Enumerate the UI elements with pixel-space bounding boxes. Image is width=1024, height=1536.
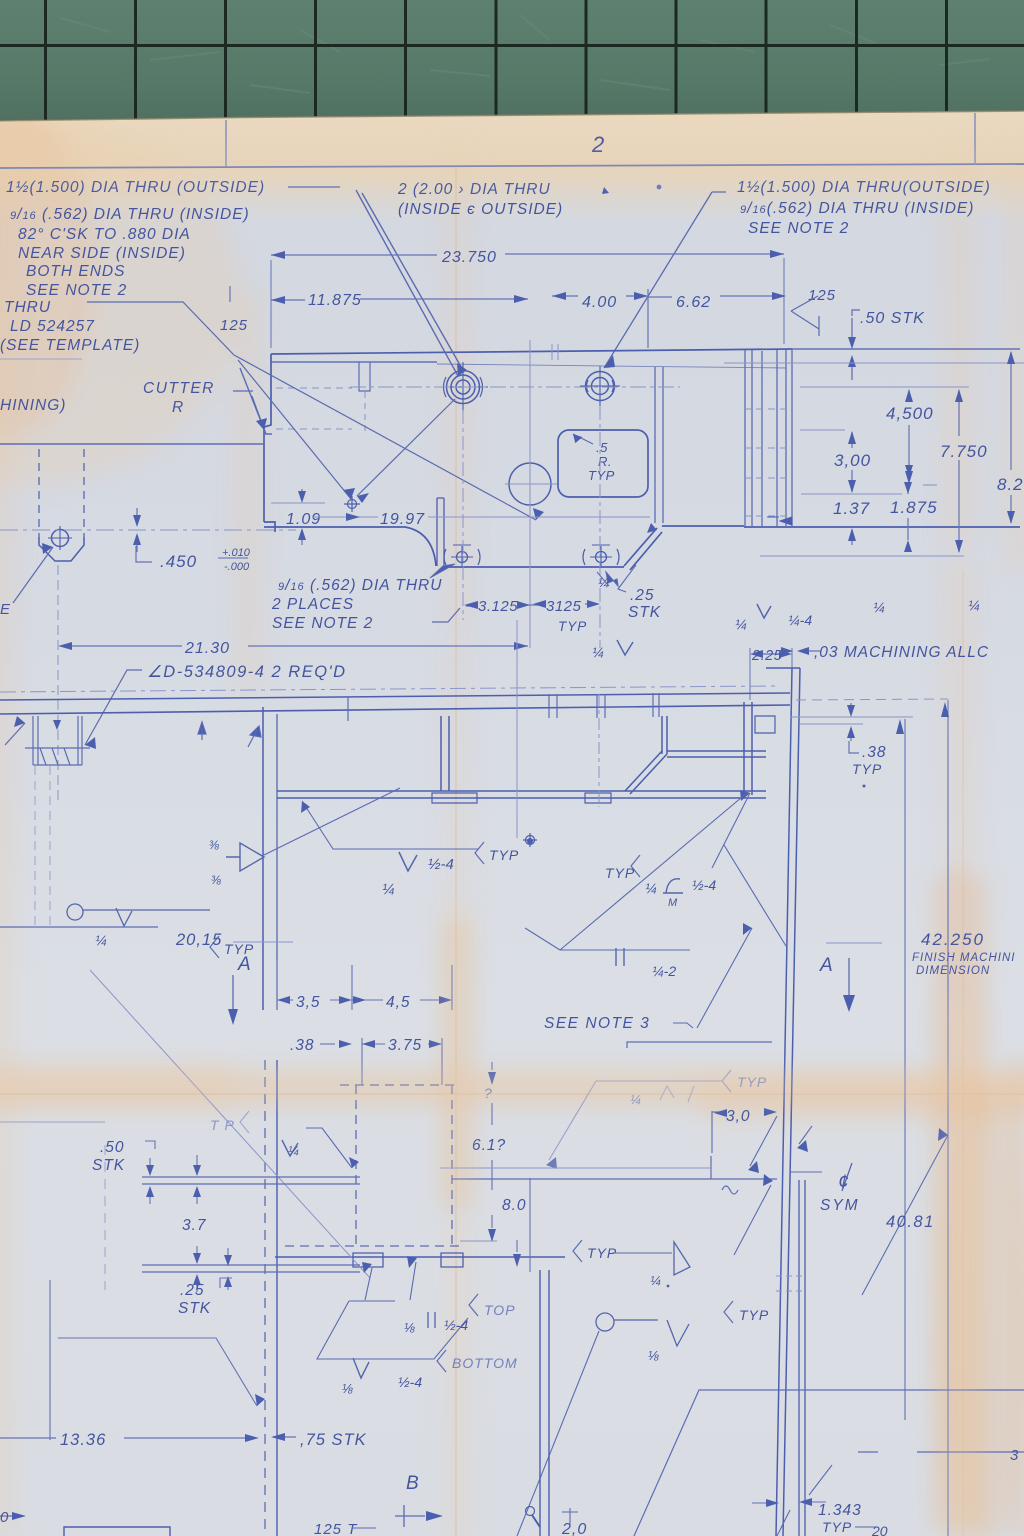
svg-text:DIMENSION: DIMENSION bbox=[916, 965, 990, 977]
svg-text:+.010: +.010 bbox=[222, 547, 251, 559]
svg-text:11.875: 11.875 bbox=[308, 292, 362, 309]
svg-text:.50 STK: .50 STK bbox=[860, 310, 925, 327]
svg-text:.25: .25 bbox=[180, 1282, 205, 1299]
svg-text:125: 125 bbox=[220, 317, 248, 334]
svg-text:1½(1.500) DIA THRU (OUTSIDE): 1½(1.500) DIA THRU (OUTSIDE) bbox=[6, 179, 265, 196]
svg-text:40.81: 40.81 bbox=[886, 1213, 935, 1231]
svg-text:HINING): HINING) bbox=[0, 397, 66, 414]
svg-text:STK: STK bbox=[92, 1157, 125, 1174]
svg-text:½-4: ½-4 bbox=[692, 877, 716, 893]
svg-text:T P: T P bbox=[210, 1117, 235, 1133]
svg-text:NEAR SIDE (INSIDE): NEAR SIDE (INSIDE) bbox=[18, 245, 186, 262]
svg-text:2 PLACES: 2 PLACES bbox=[271, 596, 354, 613]
svg-text:¼: ¼ bbox=[592, 644, 604, 660]
svg-text:SYM: SYM bbox=[820, 1197, 860, 1214]
svg-text:TYP: TYP bbox=[558, 619, 587, 634]
svg-text:⅜: ⅜ bbox=[211, 873, 221, 887]
svg-text:,03 MACHINING ALLС: ,03 MACHINING ALLС bbox=[814, 644, 989, 661]
svg-text:-.000: -.000 bbox=[224, 561, 250, 573]
svg-text:SEE NOTE 2: SEE NOTE 2 bbox=[272, 615, 373, 632]
svg-text:6.62: 6.62 bbox=[676, 294, 711, 311]
svg-text:⅜: ⅜ bbox=[209, 838, 219, 852]
svg-text:3,0: 3,0 bbox=[726, 1108, 751, 1125]
svg-text:0: 0 bbox=[0, 1509, 9, 1526]
svg-text:¼: ¼ bbox=[735, 616, 747, 632]
svg-text:THRU: THRU bbox=[4, 299, 51, 316]
svg-text:23.750: 23.750 bbox=[441, 249, 497, 266]
svg-text:¼-4: ¼-4 bbox=[788, 612, 812, 628]
svg-text:19.97: 19.97 bbox=[380, 511, 425, 528]
svg-text:¼: ¼ bbox=[968, 597, 980, 613]
svg-text:20: 20 bbox=[871, 1523, 888, 1536]
svg-text:3.125: 3.125 bbox=[478, 598, 518, 615]
svg-text:4.00: 4.00 bbox=[582, 294, 617, 311]
svg-text:∠D-534809-4 2 REQ'D: ∠D-534809-4 2 REQ'D bbox=[147, 663, 347, 681]
svg-text:1.875: 1.875 bbox=[890, 498, 938, 517]
svg-text:20,15: 20,15 bbox=[175, 931, 222, 949]
svg-text:.5: .5 bbox=[596, 440, 608, 455]
svg-text:3.75: 3.75 bbox=[388, 1037, 422, 1054]
svg-text:,75 STK: ,75 STK bbox=[300, 1431, 367, 1449]
svg-text:8.0: 8.0 bbox=[502, 1197, 527, 1214]
svg-text:A: A bbox=[819, 955, 834, 976]
svg-text:6.1?: 6.1? bbox=[472, 1137, 506, 1154]
svg-text:.38: .38 bbox=[862, 744, 887, 761]
svg-text:¼: ¼ bbox=[95, 932, 107, 948]
svg-text:2 (2.00 › DIA THRU: 2 (2.00 › DIA THRU bbox=[397, 181, 551, 198]
svg-text:3,5: 3,5 bbox=[296, 994, 321, 1011]
svg-text:¼: ¼ bbox=[288, 1143, 299, 1158]
svg-text:3.7: 3.7 bbox=[182, 1217, 207, 1234]
svg-text:(INSIDE є OUTSIDE): (INSIDE є OUTSIDE) bbox=[398, 201, 563, 218]
svg-text:2,0: 2,0 bbox=[561, 1521, 587, 1536]
svg-text:TOP: TOP bbox=[484, 1302, 516, 1318]
svg-text:1.343: 1.343 bbox=[818, 1502, 862, 1519]
svg-text:¼: ¼ bbox=[645, 880, 657, 896]
svg-text:¼-2: ¼-2 bbox=[652, 963, 676, 979]
svg-text:¼: ¼ bbox=[873, 599, 885, 615]
svg-text:LD 524257: LD 524257 bbox=[10, 318, 95, 335]
svg-text:TYP: TYP bbox=[489, 847, 519, 863]
svg-text:.50: .50 bbox=[100, 1139, 125, 1156]
svg-text:TYP: TYP bbox=[739, 1307, 769, 1323]
svg-text:SEE NOTE 2: SEE NOTE 2 bbox=[748, 220, 849, 237]
svg-text:½-4: ½-4 bbox=[398, 1374, 422, 1390]
svg-text:¼: ¼ bbox=[382, 881, 395, 898]
svg-text:STK: STK bbox=[628, 604, 661, 621]
svg-text:½-4: ½-4 bbox=[428, 856, 454, 873]
svg-text:BOTTOM: BOTTOM bbox=[452, 1355, 518, 1371]
svg-text:¼: ¼ bbox=[598, 575, 609, 590]
svg-text:3: 3 bbox=[1010, 1447, 1019, 1464]
svg-text:FINISH MACHINI: FINISH MACHINI bbox=[912, 952, 1015, 964]
svg-text:⅛: ⅛ bbox=[342, 1381, 353, 1396]
svg-text:4,500: 4,500 bbox=[886, 404, 934, 423]
svg-text:.25: .25 bbox=[630, 587, 655, 604]
svg-text:82° C'SK TO .880 DIA: 82° C'SK TO .880 DIA bbox=[18, 226, 191, 243]
svg-text:SEE NOTE 3: SEE NOTE 3 bbox=[544, 1015, 650, 1032]
svg-text:21.30: 21.30 bbox=[184, 640, 230, 657]
svg-text:STK: STK bbox=[178, 1300, 211, 1317]
svg-text:TYP: TYP bbox=[605, 865, 635, 881]
svg-text:3125: 3125 bbox=[546, 598, 582, 615]
svg-text:SEE NOTE 2: SEE NOTE 2 bbox=[26, 282, 127, 299]
svg-text:TYP: TYP bbox=[588, 468, 615, 483]
svg-text:⅛: ⅛ bbox=[404, 1320, 415, 1335]
svg-text:CUTTER: CUTTER bbox=[143, 380, 215, 397]
svg-text:9/16(.562) DIA THRU (INSIDE): 9/16(.562) DIA THRU (INSIDE) bbox=[740, 200, 974, 217]
svg-text:.38: .38 bbox=[290, 1037, 315, 1054]
svg-text:1½(1.500) DIA THRU(OUTSIDE): 1½(1.500) DIA THRU(OUTSIDE) bbox=[737, 179, 991, 196]
svg-text:A: A bbox=[237, 954, 252, 975]
svg-text:TYP: TYP bbox=[852, 761, 882, 777]
svg-text:R: R bbox=[172, 399, 185, 416]
svg-text:2.25: 2.25 bbox=[751, 648, 783, 664]
svg-text:125 T: 125 T bbox=[314, 1521, 358, 1536]
svg-text:4,5: 4,5 bbox=[386, 994, 411, 1011]
svg-text:7.750: 7.750 bbox=[940, 442, 988, 461]
svg-text:⅛: ⅛ bbox=[648, 1348, 659, 1363]
svg-text:E: E bbox=[0, 601, 11, 618]
svg-text:BOTH ENDS: BOTH ENDS bbox=[26, 263, 125, 280]
svg-text:42.250: 42.250 bbox=[921, 930, 985, 949]
svg-text:9/16 (.562) DIA THRU (INSIDE): 9/16 (.562) DIA THRU (INSIDE) bbox=[10, 206, 250, 223]
svg-text:B: B bbox=[406, 1473, 420, 1494]
svg-text:TYP: TYP bbox=[822, 1519, 852, 1535]
svg-text:¼: ¼ bbox=[650, 1273, 661, 1288]
svg-text:1.09: 1.09 bbox=[286, 511, 321, 528]
svg-text:125: 125 bbox=[808, 287, 836, 304]
svg-text:.450: .450 bbox=[160, 552, 197, 571]
svg-text:8.2: 8.2 bbox=[997, 475, 1024, 494]
svg-text:½-4: ½-4 bbox=[444, 1317, 468, 1333]
svg-text:1.37: 1.37 bbox=[833, 499, 870, 518]
svg-text:3,00: 3,00 bbox=[834, 451, 871, 470]
svg-text:M: M bbox=[668, 897, 678, 909]
svg-text:13.36: 13.36 bbox=[60, 1431, 106, 1449]
svg-text:(SEE TEMPLATE): (SEE TEMPLATE) bbox=[0, 337, 140, 354]
